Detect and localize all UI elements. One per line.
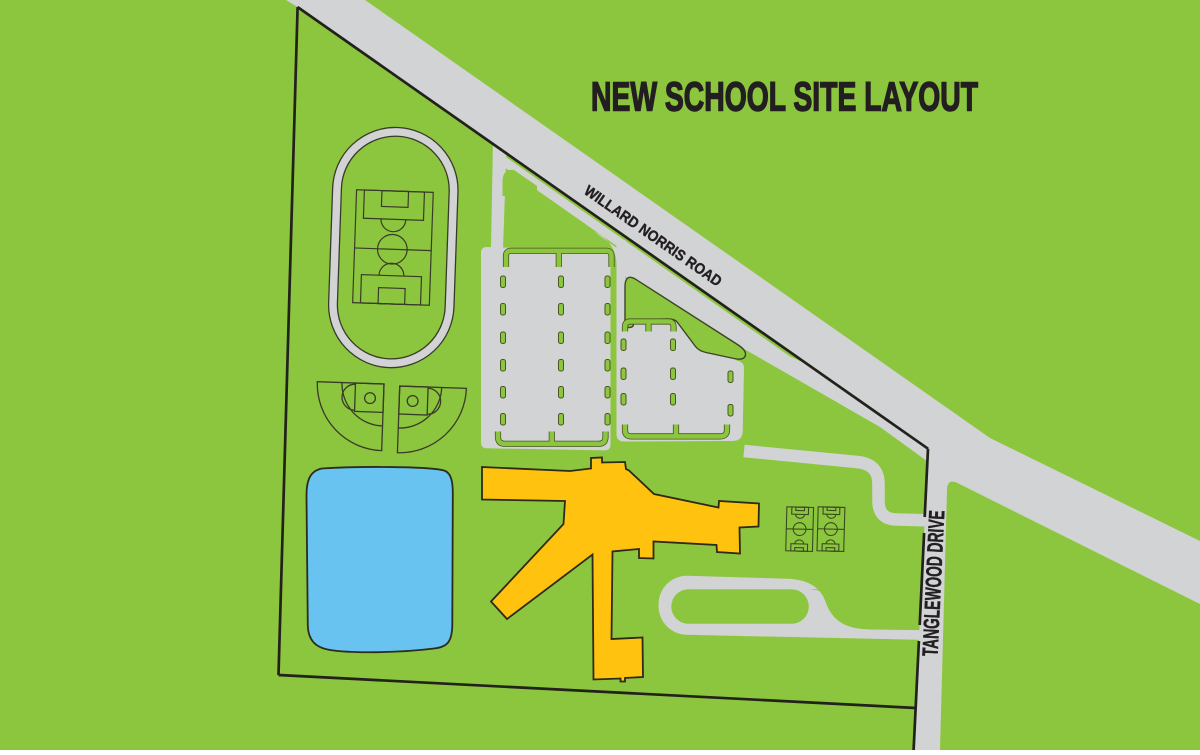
svg-text:NEW SCHOOL SITE LAYOUT: NEW SCHOOL SITE LAYOUT: [591, 74, 978, 120]
